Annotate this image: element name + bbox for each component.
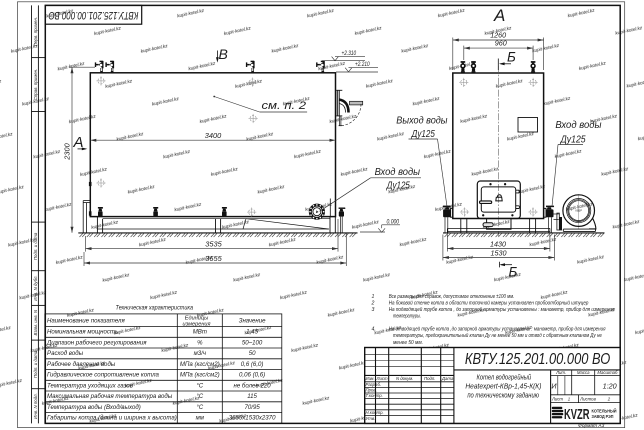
svg-text:Котел водогрейный: Котел водогрейный [477, 373, 532, 381]
svg-text:Инв. N дубл.: Инв. N дубл. [33, 275, 38, 300]
svg-text:И: И [551, 382, 557, 391]
svg-text:КВТУ.125.201.00.000 ВО: КВТУ.125.201.00.000 ВО [465, 351, 610, 368]
svg-text:мм: мм [196, 415, 205, 422]
svg-text:KVZR: KVZR [564, 406, 590, 423]
svg-text:Формат А3: Формат А3 [578, 423, 605, 429]
svg-text:0,06 (0,6): 0,06 (0,6) [239, 372, 265, 379]
svg-text:1530: 1530 [491, 248, 507, 257]
svg-text:Все размеры для справок, допус: Все размеры для справок, допустимое откл… [389, 294, 515, 300]
svg-text:Выход воды: Выход воды [396, 115, 447, 127]
svg-text:°С: °С [196, 383, 203, 390]
svg-text:Лист: Лист [551, 397, 563, 402]
svg-text:+2.310: +2.310 [342, 50, 357, 57]
svg-text:115: 115 [247, 393, 257, 400]
svg-text:0.000: 0.000 [387, 220, 400, 226]
svg-text:Изм.: Изм. [366, 376, 375, 381]
svg-text:Н.контр.: Н.контр. [366, 410, 384, 415]
svg-text:по техническому заданию: по техническому заданию [467, 391, 539, 399]
svg-text:Б: Б [507, 50, 516, 65]
svg-text:МВт: МВт [193, 329, 207, 336]
svg-text:Вход воды: Вход воды [555, 119, 601, 131]
svg-text:КВЗР: КВЗР [575, 209, 582, 213]
svg-text:МПа (кгс/см2): МПа (кгс/см2) [180, 372, 220, 379]
svg-text:Техническая характеристика: Техническая характеристика [116, 304, 194, 311]
svg-text:1430: 1430 [490, 239, 506, 248]
svg-text:см. п. 2: см. п. 2 [262, 100, 307, 112]
svg-text:Номинальная мощность: Номинальная мощность [47, 329, 118, 336]
svg-text:КВТУ.125.201.00.000 ВО: КВТУ.125.201.00.000 ВО [48, 9, 138, 21]
svg-text:МПа (кгс/см2): МПа (кгс/см2) [180, 361, 220, 368]
svg-text:Пров.: Пров. [366, 388, 377, 393]
svg-text:Ду125: Ду125 [411, 129, 435, 140]
svg-text:Значение: Значение [239, 318, 266, 325]
svg-text:Утв.: Утв. [366, 416, 376, 421]
svg-text:менее 50 мм.: менее 50 мм. [393, 340, 423, 346]
svg-text:Диапазон рабочего регулировани: Диапазон рабочего регулирования [46, 340, 147, 347]
svg-text:Лист: Лист [376, 376, 388, 381]
svg-text:Т.контр.: Т.контр. [366, 393, 383, 398]
svg-text:Температура уходящих газов: Температура уходящих газов [47, 383, 133, 390]
svg-text:температуры, предохранительный: температуры, предохранительный клапан Ду… [393, 332, 602, 339]
svg-text:Ду125: Ду125 [386, 180, 410, 191]
svg-text:Разраб.: Разраб. [366, 382, 382, 387]
svg-text:2: 2 [371, 300, 375, 306]
svg-text:м3/ч: м3/ч [194, 350, 207, 357]
svg-text:1:20: 1:20 [603, 382, 617, 391]
svg-text:Гидравлическое сопротивление к: Гидравлическое сопротивление котла [47, 372, 160, 379]
svg-text:3655х1530х2370: 3655х1530х2370 [229, 415, 276, 422]
svg-text:ЗАВОД РЭП: ЗАВОД РЭП [592, 414, 614, 419]
svg-text:50–100: 50–100 [242, 340, 263, 347]
svg-text:Взам. инв. N: Взам. инв. N [33, 309, 38, 335]
svg-text:70/95: 70/95 [244, 404, 260, 411]
svg-text:В: В [219, 46, 228, 62]
svg-text:Подп.: Подп. [424, 376, 435, 381]
svg-text:Расход воды: Расход воды [47, 350, 84, 357]
svg-text:Листов: Листов [579, 397, 596, 402]
svg-text:3400: 3400 [205, 131, 222, 140]
svg-text:Инв. N подл.: Инв. N подл. [33, 393, 38, 419]
svg-text:+2.210: +2.210 [355, 61, 370, 68]
svg-text:Габариты котла (длина и ширина: Габариты котла (длина и ширина х высота) [47, 415, 177, 422]
svg-text:Ду125: Ду125 [560, 134, 586, 145]
svg-text:Подп. и дата: Подп. и дата [33, 350, 38, 378]
svg-text:Максимальная рабочая температу: Максимальная рабочая температура воды [47, 393, 173, 400]
svg-text:3655: 3655 [205, 254, 222, 263]
svg-text:Дата: Дата [441, 376, 454, 381]
svg-text:0,6 (6,0): 0,6 (6,0) [241, 361, 264, 368]
svg-text:°С: °С [196, 404, 203, 411]
svg-text:50: 50 [249, 350, 256, 357]
svg-text:На отводящей трубе котла ,до з: На отводящей трубе котла ,до запорной ар… [389, 325, 606, 332]
svg-text:1,45: 1,45 [246, 329, 258, 336]
svg-text:Б: Б [509, 265, 518, 280]
svg-text:Лит.: Лит. [555, 370, 566, 375]
svg-text:N докум.: N докум. [396, 376, 413, 381]
svg-text:Подп. и дата: Подп. и дата [33, 232, 38, 260]
svg-text:2300: 2300 [62, 142, 71, 160]
svg-text:На подводящей трубе котла ,: На подводящей трубе котла , до запорной … [389, 306, 615, 313]
svg-text:°С: °С [196, 393, 203, 400]
svg-text:не более 220: не более 220 [233, 383, 271, 390]
svg-text:Вход воды: Вход воды [375, 166, 421, 178]
svg-text:температуры.: температуры. [393, 314, 421, 320]
svg-text:Перв. примен.: Перв. примен. [33, 17, 38, 46]
svg-text:Рабочее давление воды: Рабочее давление воды [47, 361, 116, 368]
svg-text:%: % [197, 340, 203, 347]
svg-text:Справ. примен.: Справ. примен. [33, 69, 38, 101]
svg-text:А: А [493, 6, 505, 25]
svg-text:4.: 4. [372, 326, 376, 332]
svg-text:Масса: Масса [577, 370, 590, 375]
svg-text:Наименование показателя: Наименование показателя [47, 318, 125, 325]
svg-text:3535: 3535 [205, 239, 222, 248]
svg-text:1: 1 [372, 294, 375, 300]
svg-text:На боковой стенке котла в обла: На боковой стенке котла в области топочн… [389, 299, 589, 306]
svg-text:Heatexpert-КВр-1,45-К(К): Heatexpert-КВр-1,45-К(К) [465, 384, 541, 391]
svg-text:Масштаб: Масштаб [597, 370, 618, 375]
svg-text:3: 3 [372, 307, 375, 313]
svg-text:Температура воды (Вход/выход): Температура воды (Вход/выход) [47, 404, 141, 411]
svg-text:измерения: измерения [183, 321, 211, 327]
svg-text:960: 960 [495, 39, 507, 48]
